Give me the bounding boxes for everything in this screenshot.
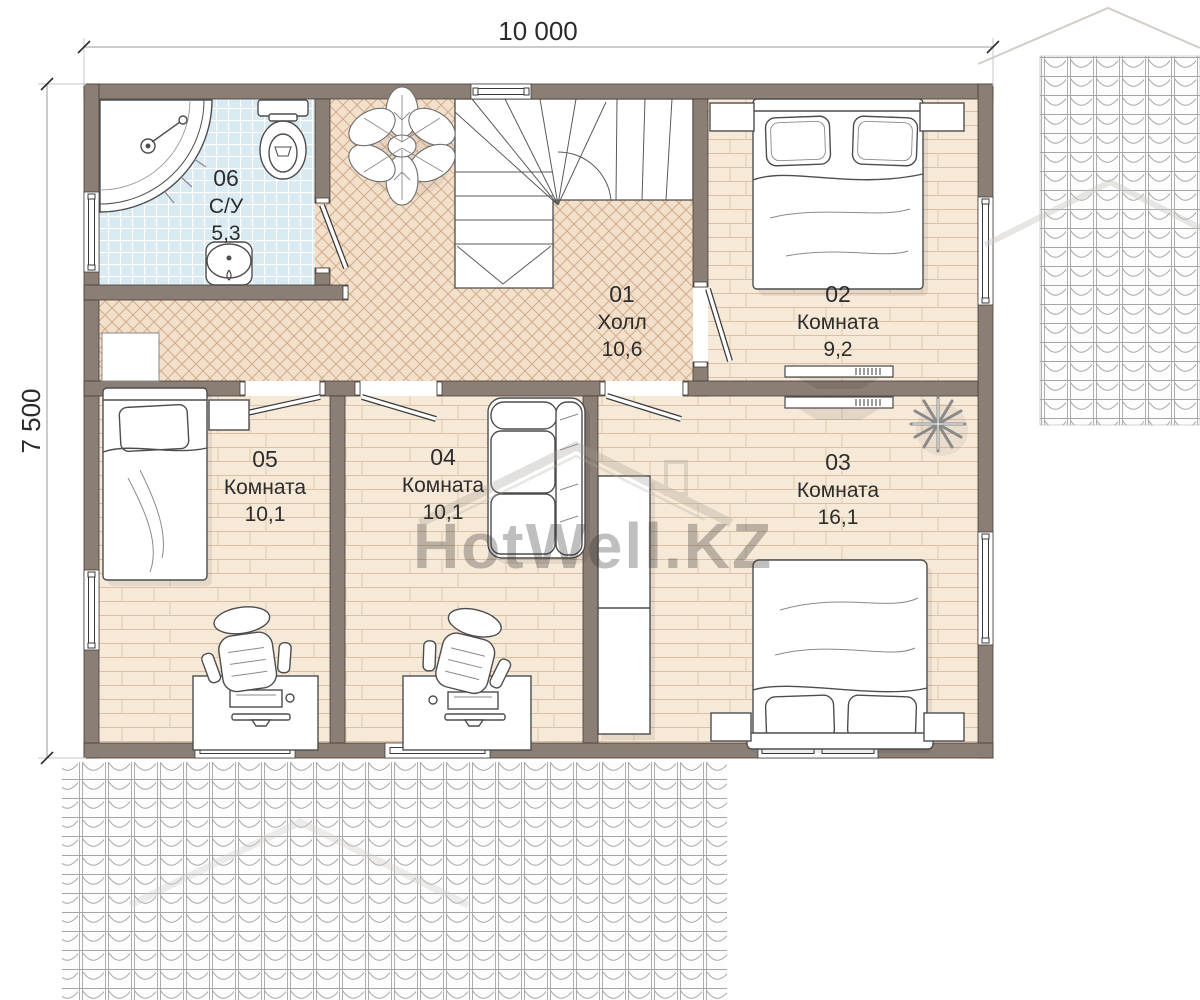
floor-plan-canvas: HotWell.KZ 10 000 7 500 01 Холл 10,6 02 … bbox=[0, 0, 1200, 1000]
dimension-left: 7 500 bbox=[16, 78, 86, 764]
svg-text:04: 04 bbox=[430, 444, 456, 470]
dimension-top: 10 000 bbox=[78, 16, 999, 86]
svg-text:10,1: 10,1 bbox=[423, 501, 464, 524]
svg-text:Холл: Холл bbox=[597, 311, 647, 334]
svg-text:03: 03 bbox=[825, 449, 851, 475]
nightstand-left bbox=[710, 103, 754, 131]
svg-text:9,2: 9,2 bbox=[823, 338, 852, 361]
wall-bathroom-right-upper bbox=[315, 99, 330, 203]
wall-exterior-top bbox=[84, 84, 993, 99]
nightstand bbox=[209, 400, 249, 430]
svg-text:С/У: С/У bbox=[209, 195, 244, 218]
wall-divider-b bbox=[320, 381, 360, 396]
svg-text:Комната: Комната bbox=[797, 311, 880, 334]
hall-cabinet bbox=[102, 333, 159, 381]
svg-text:06: 06 bbox=[213, 165, 239, 191]
nightstand-left bbox=[711, 713, 751, 741]
label-bathroom-06: 06 С/У 5,3 bbox=[209, 165, 244, 245]
svg-text:5,3: 5,3 bbox=[211, 222, 240, 245]
svg-text:02: 02 bbox=[825, 281, 851, 307]
svg-text:Комната: Комната bbox=[224, 476, 307, 499]
window-top-stairs bbox=[471, 84, 531, 99]
svg-text:Комната: Комната bbox=[402, 474, 485, 497]
wall-divider-c bbox=[437, 381, 605, 396]
svg-text:10,1: 10,1 bbox=[245, 503, 286, 526]
watermark-text: HotWell.KZ bbox=[413, 510, 773, 582]
wall-bathroom-bottom bbox=[84, 285, 348, 300]
window-left-bathroom bbox=[84, 192, 99, 272]
svg-text:16,1: 16,1 bbox=[818, 506, 859, 529]
nightstand-right bbox=[924, 713, 964, 741]
svg-text:Комната: Комната bbox=[797, 479, 880, 502]
roof-top-right bbox=[978, 8, 1200, 425]
roof-bottom-left bbox=[62, 762, 727, 1000]
dimension-width-label: 10 000 bbox=[498, 16, 578, 46]
roof-gable-outline bbox=[978, 8, 1200, 64]
window-right-room03 bbox=[978, 532, 993, 645]
svg-text:01: 01 bbox=[609, 281, 635, 307]
double-bed bbox=[753, 99, 923, 289]
wall-exterior-left bbox=[84, 84, 99, 758]
sink bbox=[206, 242, 252, 285]
floor-plan-drawing: HotWell.KZ 10 000 7 500 01 Холл 10,6 02 … bbox=[0, 0, 1200, 1000]
roof-tiles-top-right bbox=[1040, 56, 1200, 425]
svg-text:05: 05 bbox=[252, 446, 278, 472]
toilet bbox=[258, 100, 308, 179]
single-bed bbox=[103, 388, 207, 580]
svg-text:10,6: 10,6 bbox=[602, 338, 643, 361]
roof-tiles-bottom-left bbox=[62, 762, 727, 1000]
dimension-height-label: 7 500 bbox=[16, 388, 46, 453]
wall-hall-room02-upper bbox=[693, 99, 708, 287]
double-bed bbox=[747, 560, 933, 749]
window-right-room02 bbox=[978, 197, 993, 305]
wall-exterior-right bbox=[978, 84, 993, 758]
wall-room05-room04 bbox=[330, 396, 345, 743]
window-left-room05 bbox=[84, 570, 99, 650]
nightstand-right bbox=[920, 103, 964, 131]
